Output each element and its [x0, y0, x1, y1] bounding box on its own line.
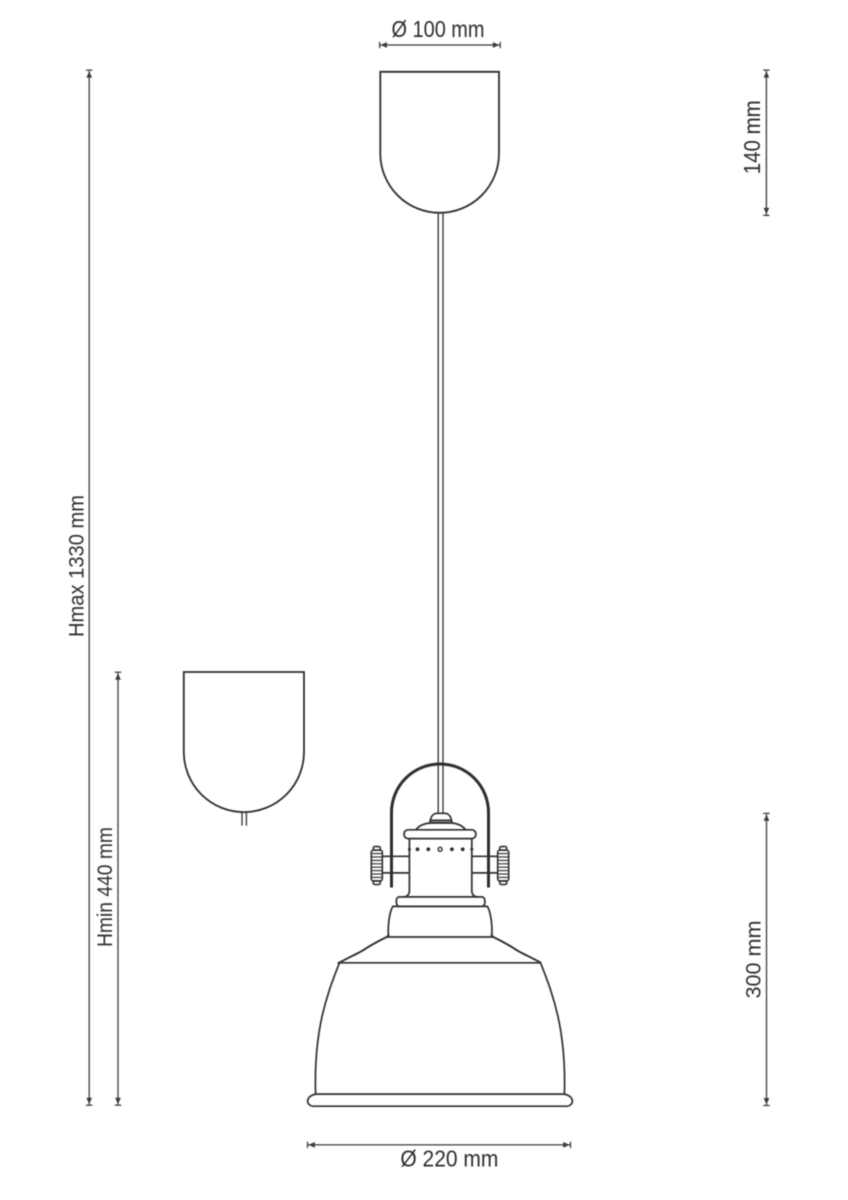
svg-text:140 mm: 140 mm [739, 100, 765, 174]
svg-text:Ø 100 mm: Ø 100 mm [392, 16, 485, 42]
svg-text:Ø 220 mm: Ø 220 mm [400, 1146, 498, 1172]
svg-text:Hmin 440 mm: Hmin 440 mm [94, 827, 117, 947]
svg-text:300 mm: 300 mm [741, 921, 765, 999]
svg-text:Hmax 1330 mm: Hmax 1330 mm [66, 495, 89, 637]
